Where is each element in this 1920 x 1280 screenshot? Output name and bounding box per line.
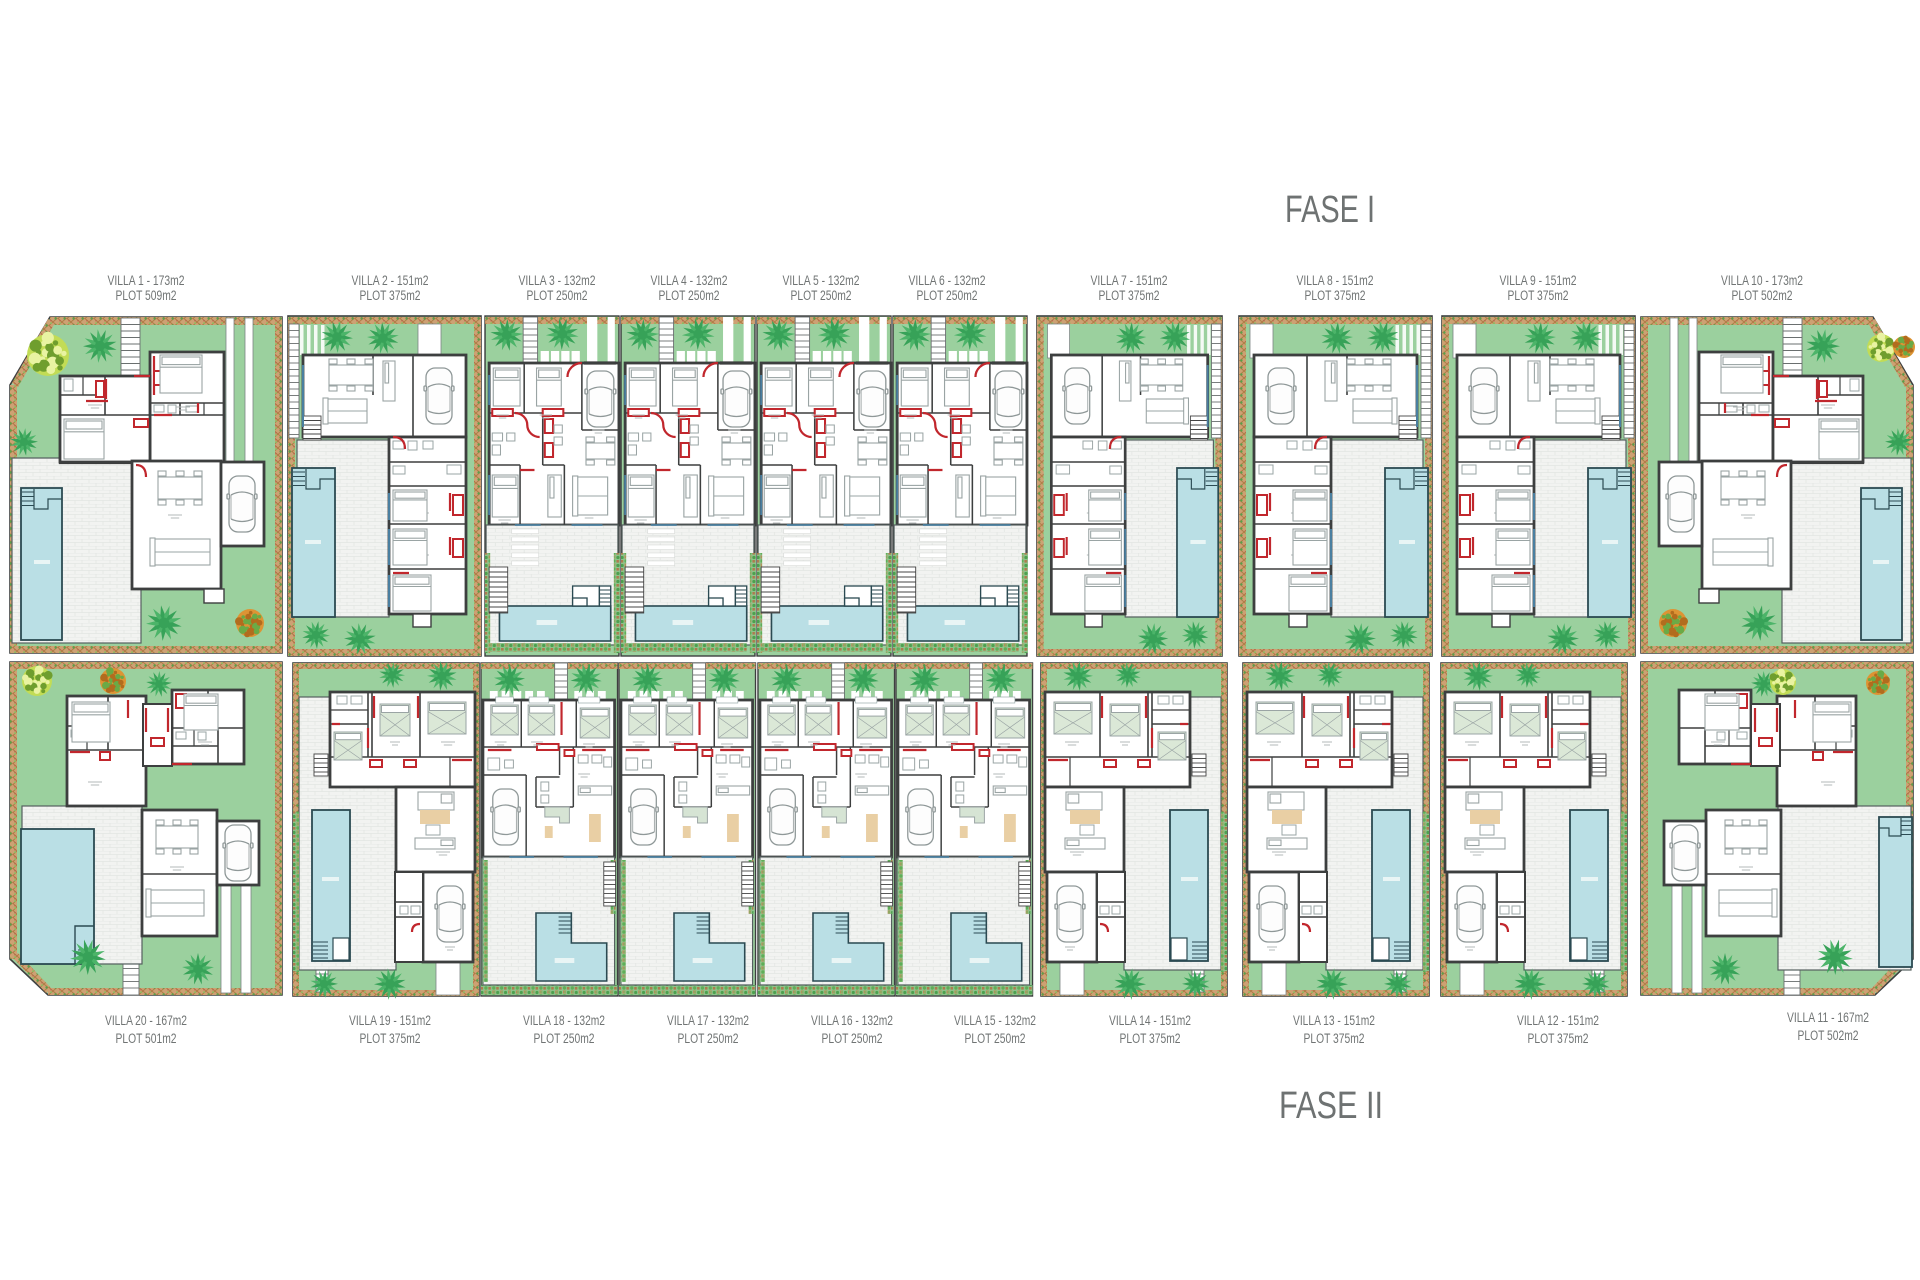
svg-text:VILLA 1 - 173m2: VILLA 1 - 173m2	[108, 273, 185, 288]
svg-text:VILLA 19 - 151m2: VILLA 19 - 151m2	[349, 1013, 431, 1028]
svg-text:PLOT 250m2: PLOT 250m2	[534, 1031, 595, 1046]
svg-text:VILLA 2 - 151m2: VILLA 2 - 151m2	[352, 273, 429, 288]
svg-text:PLOT 250m2: PLOT 250m2	[678, 1031, 739, 1046]
svg-text:VILLA 8 - 151m2: VILLA 8 - 151m2	[1297, 273, 1374, 288]
svg-text:PLOT 250m2: PLOT 250m2	[822, 1031, 883, 1046]
svg-text:PLOT 501m2: PLOT 501m2	[116, 1031, 177, 1046]
svg-text:VILLA 14 - 151m2: VILLA 14 - 151m2	[1109, 1013, 1191, 1028]
svg-text:PLOT 250m2: PLOT 250m2	[917, 288, 978, 303]
svg-text:VILLA 12 - 151m2: VILLA 12 - 151m2	[1517, 1013, 1599, 1028]
svg-text:VILLA 9 - 151m2: VILLA 9 - 151m2	[1500, 273, 1577, 288]
svg-text:PLOT 250m2: PLOT 250m2	[659, 288, 720, 303]
svg-text:VILLA 13 - 151m2: VILLA 13 - 151m2	[1293, 1013, 1375, 1028]
svg-text:VILLA 20 - 167m2: VILLA 20 - 167m2	[105, 1013, 187, 1028]
svg-text:PLOT 375m2: PLOT 375m2	[1305, 288, 1366, 303]
svg-text:PLOT 509m2: PLOT 509m2	[116, 288, 177, 303]
svg-text:VILLA 6 - 132m2: VILLA 6 - 132m2	[909, 273, 986, 288]
svg-text:PLOT 250m2: PLOT 250m2	[965, 1031, 1026, 1046]
svg-text:VILLA 4 - 132m2: VILLA 4 - 132m2	[651, 273, 728, 288]
svg-text:VILLA 15 - 132m2: VILLA 15 - 132m2	[954, 1013, 1036, 1028]
svg-text:PLOT 250m2: PLOT 250m2	[791, 288, 852, 303]
svg-text:VILLA 11 - 167m2: VILLA 11 - 167m2	[1787, 1010, 1869, 1025]
svg-text:VILLA 18 - 132m2: VILLA 18 - 132m2	[523, 1013, 605, 1028]
svg-text:PLOT 375m2: PLOT 375m2	[360, 1031, 421, 1046]
svg-text:FASE II: FASE II	[1279, 1085, 1383, 1127]
svg-text:PLOT 502m2: PLOT 502m2	[1732, 288, 1793, 303]
svg-text:VILLA 10 - 173m2: VILLA 10 - 173m2	[1721, 273, 1803, 288]
svg-text:PLOT 375m2: PLOT 375m2	[360, 288, 421, 303]
svg-text:VILLA 3 - 132m2: VILLA 3 - 132m2	[519, 273, 596, 288]
svg-text:PLOT 375m2: PLOT 375m2	[1120, 1031, 1181, 1046]
svg-text:PLOT 250m2: PLOT 250m2	[527, 288, 588, 303]
svg-text:PLOT 375m2: PLOT 375m2	[1528, 1031, 1589, 1046]
svg-text:PLOT 375m2: PLOT 375m2	[1304, 1031, 1365, 1046]
svg-text:VILLA 17 - 132m2: VILLA 17 - 132m2	[667, 1013, 749, 1028]
svg-text:VILLA 5 - 132m2: VILLA 5 - 132m2	[783, 273, 860, 288]
svg-text:PLOT 375m2: PLOT 375m2	[1099, 288, 1160, 303]
svg-text:PLOT 502m2: PLOT 502m2	[1798, 1028, 1859, 1043]
svg-text:VILLA 7 - 151m2: VILLA 7 - 151m2	[1091, 273, 1168, 288]
svg-text:VILLA 16 - 132m2: VILLA 16 - 132m2	[811, 1013, 893, 1028]
svg-text:FASE I: FASE I	[1285, 189, 1375, 231]
svg-text:PLOT 375m2: PLOT 375m2	[1508, 288, 1569, 303]
